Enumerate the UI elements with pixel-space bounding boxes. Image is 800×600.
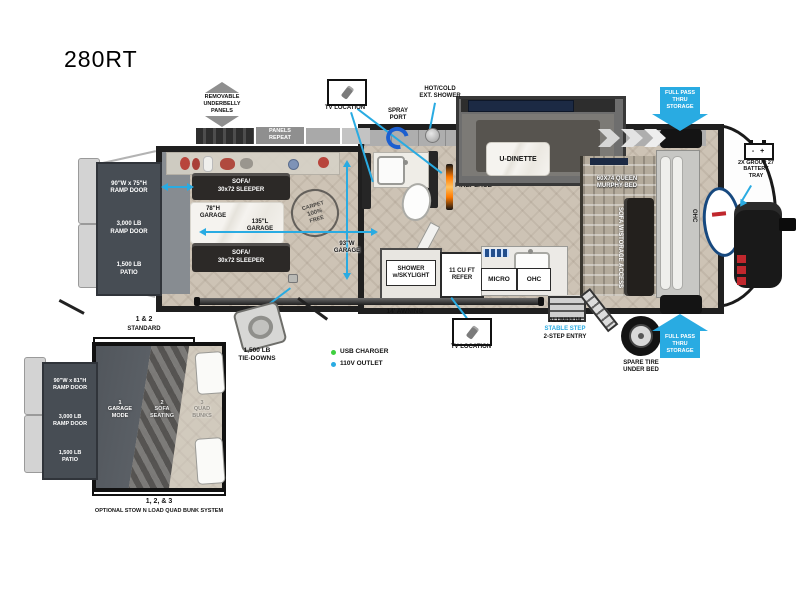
entry-step-label: ALUMINUM STABLE STEP 2-STEP ENTRY (534, 318, 596, 341)
inset-bunk-bottom (194, 437, 225, 485)
floorplan-page: 280RT 90"W x 75"H RAMP DOOR 3,000 LB RAM… (0, 0, 800, 600)
dinette-label-box: U-DINETTE (486, 142, 550, 176)
underbelly-label: REMOVABLE UNDERBELLY PANELS (203, 94, 240, 115)
garage-sofa-top: SOFA/ 30x72 SLEEPER (192, 173, 290, 200)
inset-door-weight-label: 3,000 LB RAMP DOOR (44, 414, 96, 428)
inset-mode2-label: 2 SOFA SEATING (146, 400, 178, 419)
battery-strap-2 (737, 266, 746, 274)
tv-location-top-label: TV LOCATION (310, 105, 380, 112)
full-pass-bottom-tri-icon (652, 314, 708, 331)
gear-item-red-1 (180, 157, 190, 170)
legend-usb-dot (331, 350, 336, 355)
micro-label: MICRO (481, 268, 517, 291)
spare-tire-hub (638, 333, 644, 339)
spray-port-label: SPRAY PORT (378, 108, 418, 122)
fireplace-strip (446, 164, 453, 210)
full-pass-top-tri-icon (652, 114, 708, 131)
awning-endcap-right (538, 297, 544, 306)
gear-item-blue (288, 159, 299, 170)
underbelly-arrow-up-icon (205, 82, 239, 93)
rear-door-width-arrow (165, 186, 190, 188)
inset-mode1-label: 1 GARAGE MODE (104, 400, 136, 419)
spare-tire-rim (629, 324, 653, 348)
inset-patio-label: 1,500 LB PATIO (44, 450, 96, 464)
gear-item-red-2 (192, 158, 200, 170)
tie-anchor-dot (288, 274, 298, 283)
entry-stable-step-label: STABLE STEP (534, 326, 596, 334)
gear-item-gray (240, 158, 253, 169)
full-pass-top-arrow: FULL PASS THRU STORAGE (652, 87, 708, 131)
garage-width-arrow (346, 164, 348, 276)
dinette-window (468, 100, 574, 112)
entry-aluminum-label: ALUMINUM (534, 318, 596, 326)
bath-sink (377, 156, 405, 185)
sofa-top-label: SOFA/ 30x72 SLEEPER (218, 179, 264, 195)
tie-down-label: 1,500 LB TIE-DOWNS (224, 347, 290, 362)
legend-outlet-label: 110V OUTLET (340, 360, 383, 367)
awning-bar (194, 298, 544, 305)
tv-location-top-box (327, 79, 367, 106)
panels-strip-dark (196, 128, 254, 144)
legend-outlet-dot (331, 362, 336, 367)
cabinet-panel-1 (660, 156, 671, 290)
inset-header-bracket (93, 337, 195, 339)
gear-item-white (203, 156, 213, 172)
kitchen-faucet (528, 249, 533, 254)
ext-shower-label: HOT/COLD EXT. SHOWER (414, 86, 466, 100)
hitch-stem (779, 218, 796, 231)
tv-location-bottom-box (452, 318, 492, 346)
tv-location-bottom-label: TV LOCATION (440, 344, 502, 351)
inset-mode3-label: 3 QUAD BUNKS (188, 400, 216, 419)
battery-strap-3 (737, 277, 746, 285)
bath-faucet (403, 160, 408, 165)
legend-usb-label: USB CHARGER (340, 348, 388, 355)
full-pass-bottom-arrow: FULL PASS THRU STORAGE (652, 314, 708, 358)
ramp-patio-label: 1,500 LB PATIO (98, 262, 160, 277)
inset-ramp-door: 90"W x 81"H RAMP DOOR 3,000 LB RAMP DOOR… (42, 362, 98, 480)
inset-door-size-label: 90"W x 81"H RAMP DOOR (44, 378, 96, 392)
inset-footer-num: 1, 2, & 3 (129, 498, 189, 506)
page-title: 280RT (64, 46, 138, 73)
inset-header-num: 1 & 2 (118, 316, 170, 324)
spare-tire-label: SPARE TIRE UNDER BED (608, 360, 674, 374)
awning-endcap-left (194, 297, 200, 306)
garage-length-arrow (203, 231, 374, 233)
shower-label: SHOWER w/SKYLIGHT (386, 260, 436, 286)
inset-footer-label: OPTIONAL STOW N LOAD QUAD BUNK SYSTEM (79, 508, 239, 514)
underbelly-arrow-down-icon (205, 116, 239, 127)
full-pass-bottom-label: FULL PASS THRU STORAGE (660, 331, 700, 358)
battery-tray-label: 2X GROUP 27 BATTERY TRAY (722, 160, 790, 179)
full-pass-top-label: FULL PASS THRU STORAGE (660, 87, 700, 114)
panels-repeat-label: PANELS REPEAT (256, 127, 304, 144)
garage-sofa-bottom: SOFA/ 30x72 SLEEPER (192, 243, 290, 272)
remote-icon-2 (465, 325, 479, 340)
rear-stabilizer (59, 299, 85, 315)
kitchen-ohc-label: OHC (517, 268, 551, 291)
murphy-sofa-cushions (624, 198, 654, 296)
battery-terminal-1 (749, 140, 753, 143)
tongue-battery-box (734, 202, 782, 288)
usb-charge-strip (483, 249, 509, 257)
cabinet-panel-2 (672, 156, 683, 290)
panels-strip-mid (306, 128, 340, 144)
battery-icon-text: - + (752, 148, 766, 155)
rear-ramp-door: 90"W x 75"H RAMP DOOR 3,000 LB RAMP DOOR… (96, 162, 162, 296)
bedroom-window (590, 158, 628, 165)
front-compartment-bottom (660, 295, 702, 314)
front-ohc-label: OHC (684, 198, 697, 234)
gear-item-red-3 (220, 158, 235, 170)
entry-2step-label: 2-STEP ENTRY (534, 334, 596, 342)
ramp-door-size-label: 90"W x 75"H RAMP DOOR (98, 181, 160, 196)
battery-strap-1 (737, 255, 746, 263)
garage-height-label: 78"H GARAGE (194, 206, 232, 220)
sofa-bottom-label: SOFA/ 30x72 SLEEPER (218, 250, 264, 266)
inset-footer-bracket (92, 494, 226, 496)
battery-icon: - + (744, 143, 774, 160)
murphy-bed-label: 60X74 QUEEN MURPHY BED (582, 176, 652, 190)
inset-bunk-top (195, 351, 226, 395)
ramp-door-weight-label: 3,000 LB RAMP DOOR (98, 221, 160, 236)
sofa-storage-label: SOFA W/STORAGE ACCESS (605, 200, 623, 296)
tie-down-ring (245, 313, 275, 342)
remote-icon (340, 85, 354, 100)
battery-terminal-2 (762, 140, 766, 143)
front-compartment-top (660, 129, 702, 148)
awning-label: 14' AWNING (378, 308, 432, 316)
inset-header-label: STANDARD (118, 326, 170, 333)
dinette-label: U-DINETTE (499, 156, 536, 163)
ext-shower-knob-icon (425, 128, 440, 143)
refer-label: 11 CU FT REFER (440, 252, 484, 298)
gear-item-red-4 (318, 157, 329, 168)
garage-width-label: 93"W GARAGE (327, 241, 367, 255)
underbelly-arrow: REMOVABLE UNDERBELLY PANELS (196, 82, 248, 127)
